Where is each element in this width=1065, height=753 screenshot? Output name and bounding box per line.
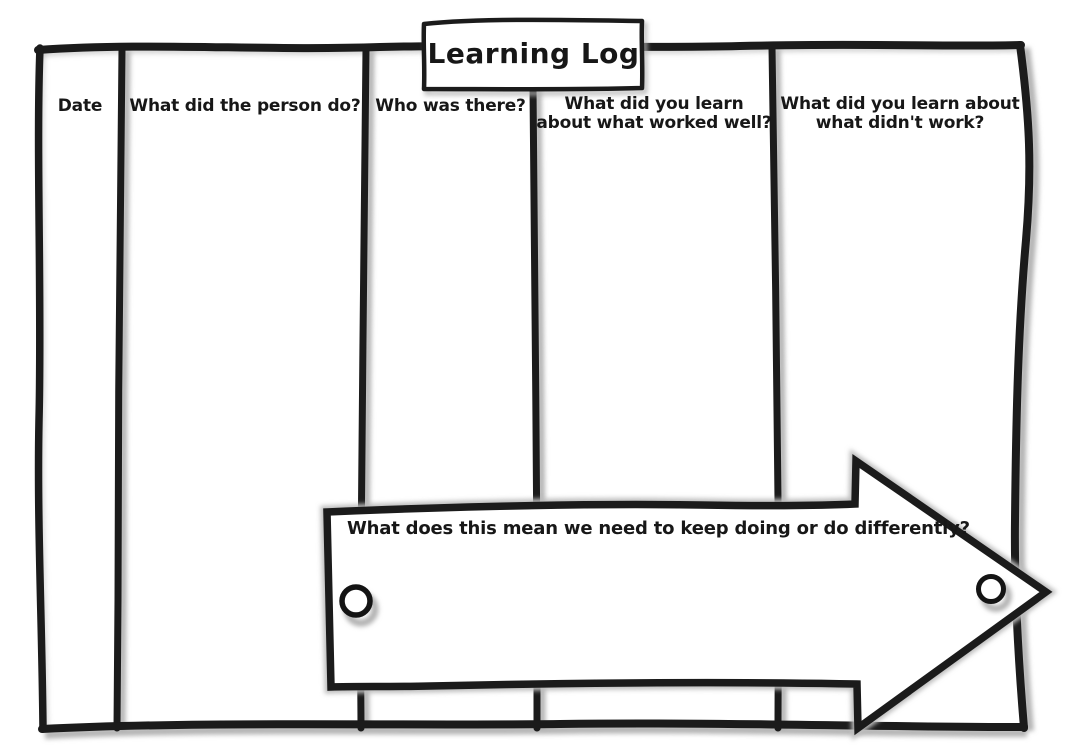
arrow-shape xyxy=(327,461,1046,728)
learning-log-worksheet: Learning Log Date What did the person do… xyxy=(0,0,1065,753)
outer-border-left xyxy=(39,48,43,729)
outer-border-bottom xyxy=(42,724,1024,729)
column-header-what-did-person-do: What did the person do? xyxy=(124,97,366,116)
column-divider-1 xyxy=(117,49,122,728)
column-header-who-was-there: Who was there? xyxy=(368,97,533,116)
worksheet-title: Learning Log xyxy=(425,37,642,70)
column-header-date: Date xyxy=(40,97,120,116)
column-header-learn-worked-well: What did you learn about what worked wel… xyxy=(536,95,772,133)
column-header-learn-didnt-work: What did you learn about what didn't wor… xyxy=(776,95,1024,133)
arrow-question: What does this mean we need to keep doin… xyxy=(347,518,907,539)
